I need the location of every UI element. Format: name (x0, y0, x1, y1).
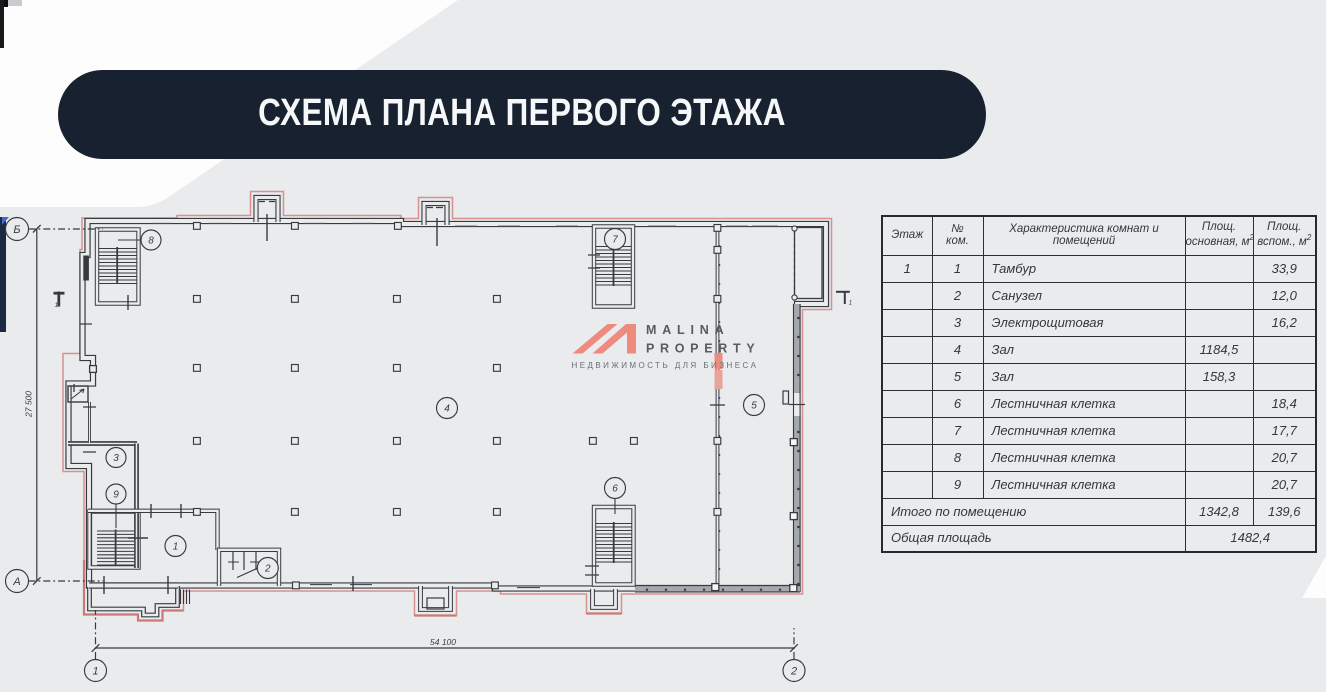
svg-text:PROPERTY: PROPERTY (646, 342, 760, 356)
svg-text:1: 1 (92, 666, 98, 678)
svg-text:8: 8 (148, 236, 154, 247)
svg-text:1: 1 (55, 302, 59, 309)
svg-text:2: 2 (790, 666, 797, 678)
svg-text:54 100: 54 100 (430, 637, 456, 647)
svg-text:2: 2 (264, 564, 271, 575)
svg-text:А: А (12, 576, 20, 588)
svg-text:7: 7 (612, 235, 618, 246)
svg-text:1: 1 (173, 542, 179, 553)
svg-text:1: 1 (849, 301, 852, 307)
svg-text:НЕДВИЖИМОСТЬ ДЛЯ БИЗНЕСА: НЕДВИЖИМОСТЬ ДЛЯ БИЗНЕСА (572, 361, 759, 370)
svg-text:27 500: 27 500 (24, 391, 34, 418)
svg-text:Б: Б (13, 224, 20, 236)
svg-text:MALINA: MALINA (646, 323, 729, 337)
svg-text:5: 5 (751, 401, 757, 412)
svg-text:9: 9 (113, 490, 119, 501)
svg-text:3: 3 (113, 453, 119, 464)
svg-text:6: 6 (612, 484, 618, 495)
svg-text:4: 4 (444, 404, 450, 415)
